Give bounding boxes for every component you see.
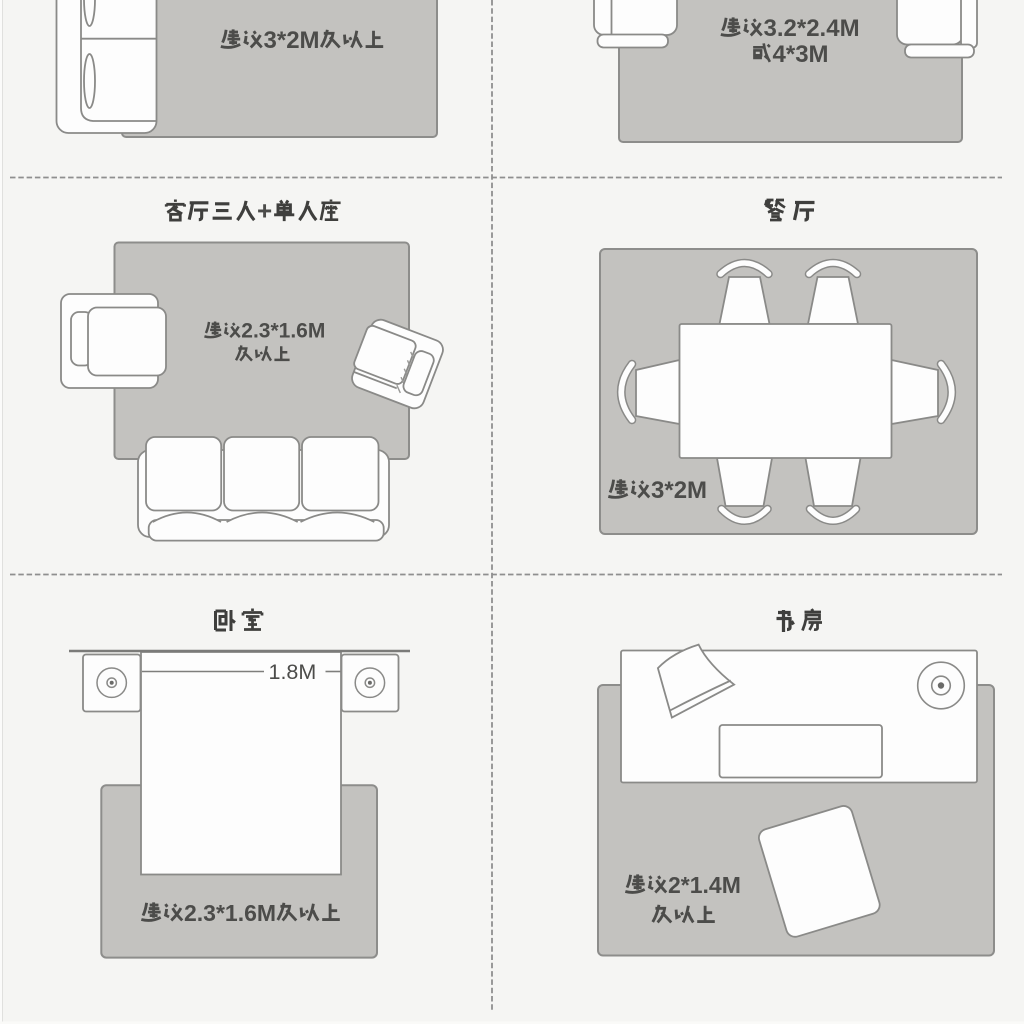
svg-text:4*3M: 4*3M bbox=[773, 41, 829, 68]
svg-text:+: + bbox=[257, 196, 272, 226]
svg-text:2*1.4M: 2*1.4M bbox=[668, 872, 741, 898]
svg-text:3.2*2.4M: 3.2*2.4M bbox=[764, 15, 860, 42]
svg-text:3*2M: 3*2M bbox=[264, 27, 320, 54]
svg-text:2.3*1.6M: 2.3*1.6M bbox=[184, 900, 276, 926]
svg-text:1.8M: 1.8M bbox=[269, 660, 317, 684]
svg-text:3*2M: 3*2M bbox=[651, 477, 707, 504]
svg-text:2.3*1.6M: 2.3*1.6M bbox=[241, 320, 325, 343]
